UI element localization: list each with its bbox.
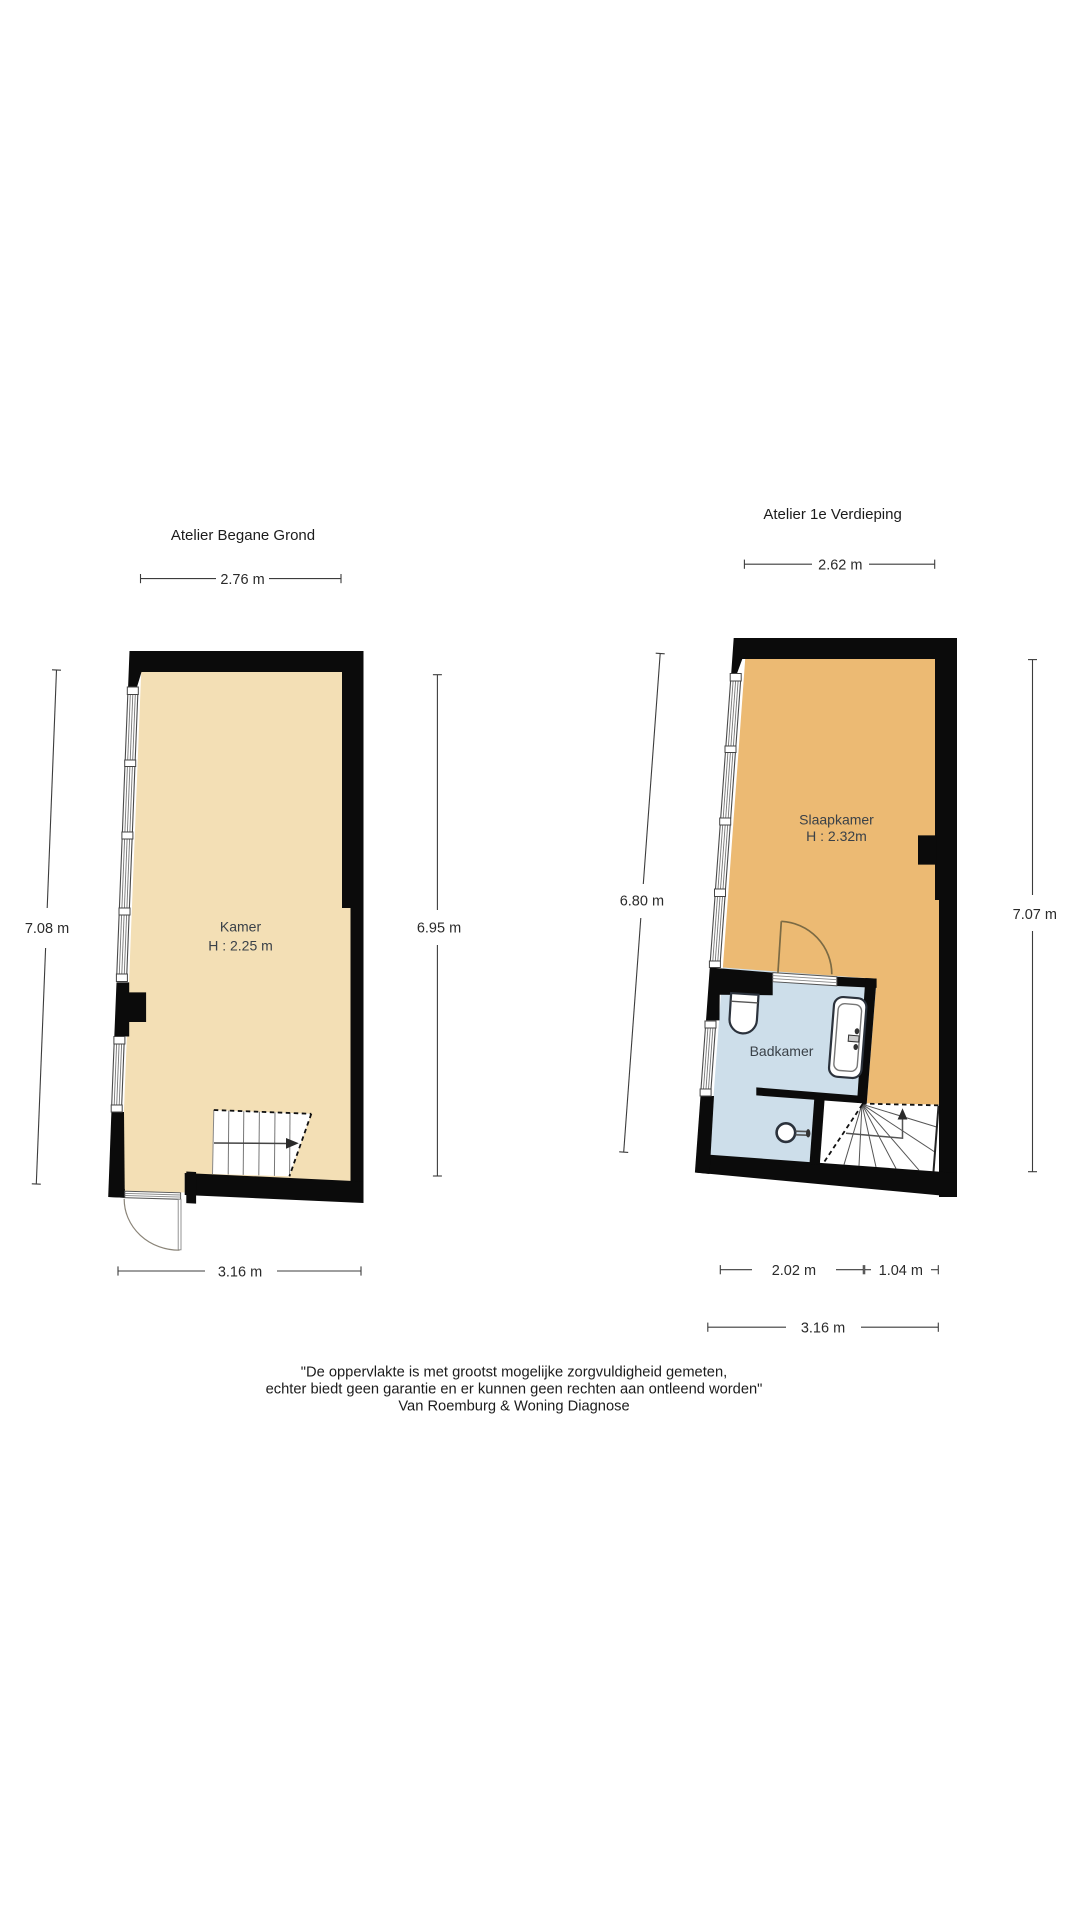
svg-text:3.16 m: 3.16 m	[218, 1265, 262, 1281]
svg-text:Badkamer: Badkamer	[750, 1043, 814, 1059]
svg-text:7.08 m: 7.08 m	[25, 921, 69, 937]
svg-text:Atelier Begane Grond: Atelier Begane Grond	[171, 527, 315, 544]
svg-text:echter biedt geen garantie en: echter biedt geen garantie en er kunnen …	[266, 1382, 763, 1398]
svg-text:3.16 m: 3.16 m	[801, 1321, 845, 1337]
svg-text:2.02 m: 2.02 m	[772, 1263, 816, 1279]
svg-text:6.80 m: 6.80 m	[620, 894, 664, 910]
svg-text:1.04 m: 1.04 m	[879, 1263, 923, 1279]
svg-text:Atelier 1e Verdieping: Atelier 1e Verdieping	[763, 506, 901, 523]
svg-text:6.95 m: 6.95 m	[417, 921, 461, 937]
svg-text:2.76 m: 2.76 m	[220, 572, 264, 588]
svg-text:"De oppervlakte is met grootst: "De oppervlakte is met grootst mogelijke…	[301, 1365, 727, 1381]
svg-text:2.62 m: 2.62 m	[818, 558, 862, 574]
svg-text:Slaapkamer: Slaapkamer	[799, 811, 874, 827]
svg-text:Kamer: Kamer	[220, 919, 262, 935]
svg-text:Van Roemburg & Woning Diagnose: Van Roemburg & Woning Diagnose	[398, 1399, 629, 1415]
svg-text:H : 2.32m: H : 2.32m	[806, 828, 867, 844]
svg-text:H : 2.25 m: H : 2.25 m	[208, 938, 273, 954]
svg-text:7.07 m: 7.07 m	[1013, 907, 1057, 923]
